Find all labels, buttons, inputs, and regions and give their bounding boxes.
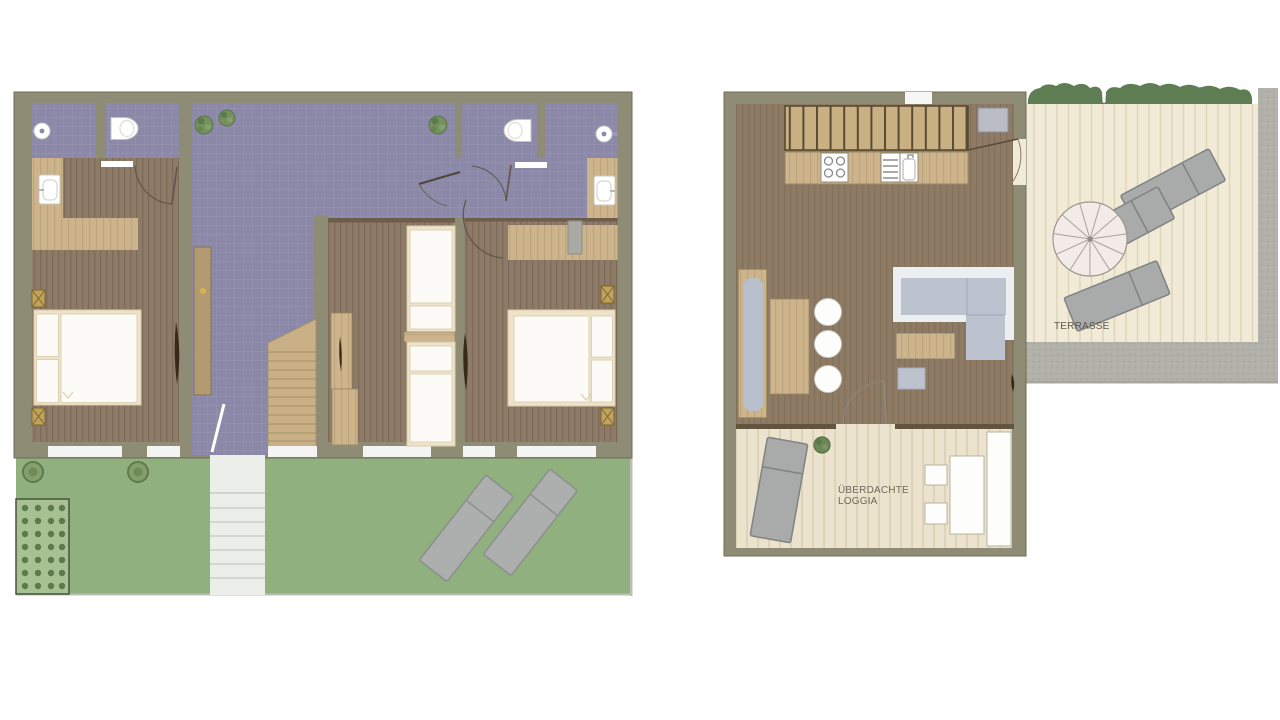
svg-text:TERRASSE: TERRASSE: [1054, 321, 1110, 332]
svg-text:LOGGIA: LOGGIA: [838, 496, 878, 507]
svg-text:ÜBERDACHTE: ÜBERDACHTE: [838, 484, 909, 496]
